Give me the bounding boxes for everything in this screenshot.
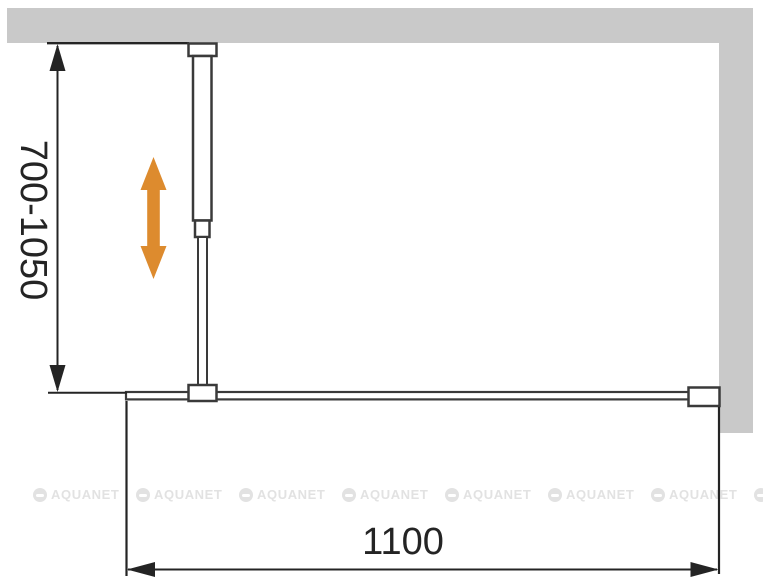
- support-bar-lower-tube: [198, 237, 207, 386]
- width-arrow-left-icon: [127, 562, 155, 577]
- depth-arrow-up-icon: [50, 44, 66, 71]
- depth-dimension-label: 700-1050: [14, 140, 52, 301]
- wall-profile: [689, 388, 720, 407]
- support-bar-collar: [195, 221, 210, 238]
- width-arrow-right-icon: [691, 562, 719, 577]
- glass-clamp: [189, 385, 217, 401]
- height-adjust-arrow-icon: [141, 157, 167, 279]
- width-dimension-label: 1100: [362, 523, 444, 561]
- drawing-svg: [0, 0, 763, 583]
- diagram-canvas: AQUANET AQUANET AQUANET AQUANET AQUANET …: [0, 0, 763, 583]
- support-bar-wall-bracket: [189, 44, 217, 57]
- support-bar-upper-tube: [193, 56, 212, 221]
- depth-arrow-down-icon: [50, 365, 66, 392]
